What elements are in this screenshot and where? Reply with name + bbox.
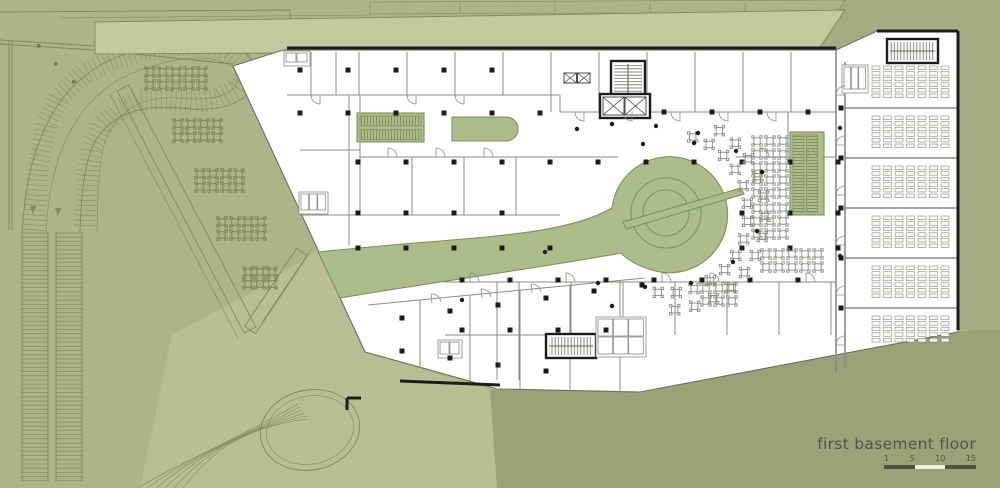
escalator-right xyxy=(790,132,824,215)
drawing-title: first basement floor xyxy=(817,436,976,453)
scale-bar-segment xyxy=(915,465,946,469)
scale-bar-segment xyxy=(945,465,976,469)
floor-plan-sheet: first basement floor 151015 xyxy=(0,0,1000,488)
scale-tick-label: 5 xyxy=(910,455,915,463)
title-block: first basement floor 151015 xyxy=(817,436,976,469)
scale-tick-label: 1 xyxy=(884,455,889,463)
scale-bar: 151015 xyxy=(884,455,976,469)
staircase-bottom xyxy=(546,334,596,358)
planter-pill xyxy=(452,117,518,141)
scale-tick-label: 10 xyxy=(935,455,945,463)
site-plan-drawing xyxy=(0,0,1000,488)
scale-tick-label: 15 xyxy=(966,455,976,463)
scale-ticks: 151015 xyxy=(884,455,976,465)
scale-bar-segments xyxy=(884,465,976,469)
scale-bar-segment xyxy=(884,465,915,469)
staircase-right xyxy=(887,39,938,63)
escalator-top xyxy=(357,113,424,142)
